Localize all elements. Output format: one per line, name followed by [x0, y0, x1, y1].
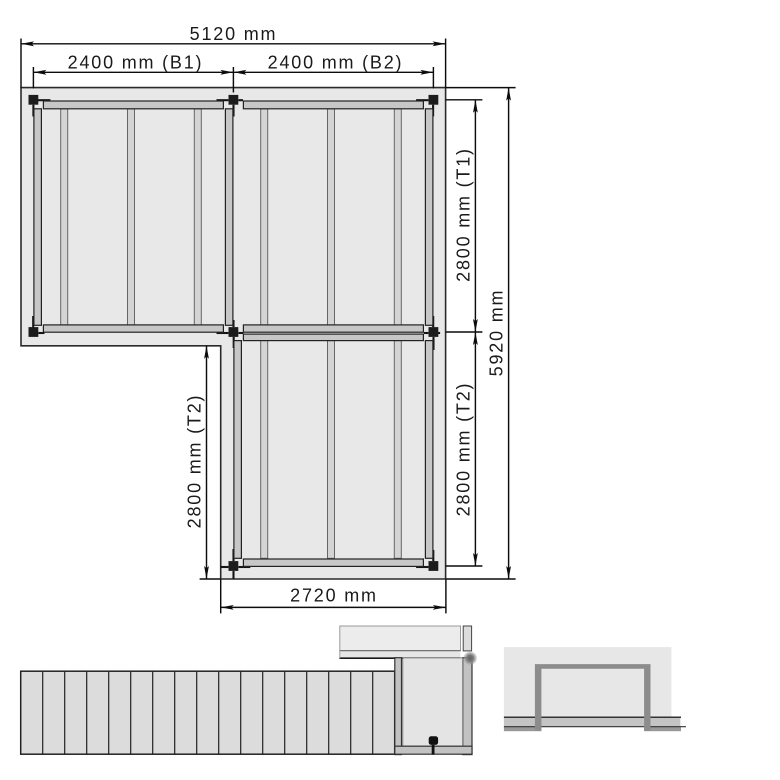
svg-text:2720 mm: 2720 mm [290, 586, 378, 606]
svg-text:5920 mm: 5920 mm [487, 289, 507, 377]
svg-text:2800 mm (T2): 2800 mm (T2) [453, 382, 473, 517]
svg-text:2400 mm (B1): 2400 mm (B1) [68, 53, 204, 73]
svg-text:5120 mm: 5120 mm [190, 24, 278, 44]
svg-text:2800 mm (T2): 2800 mm (T2) [185, 394, 205, 529]
svg-text:2800 mm (T1): 2800 mm (T1) [453, 147, 473, 282]
svg-text:2400 mm (B2): 2400 mm (B2) [268, 53, 404, 73]
